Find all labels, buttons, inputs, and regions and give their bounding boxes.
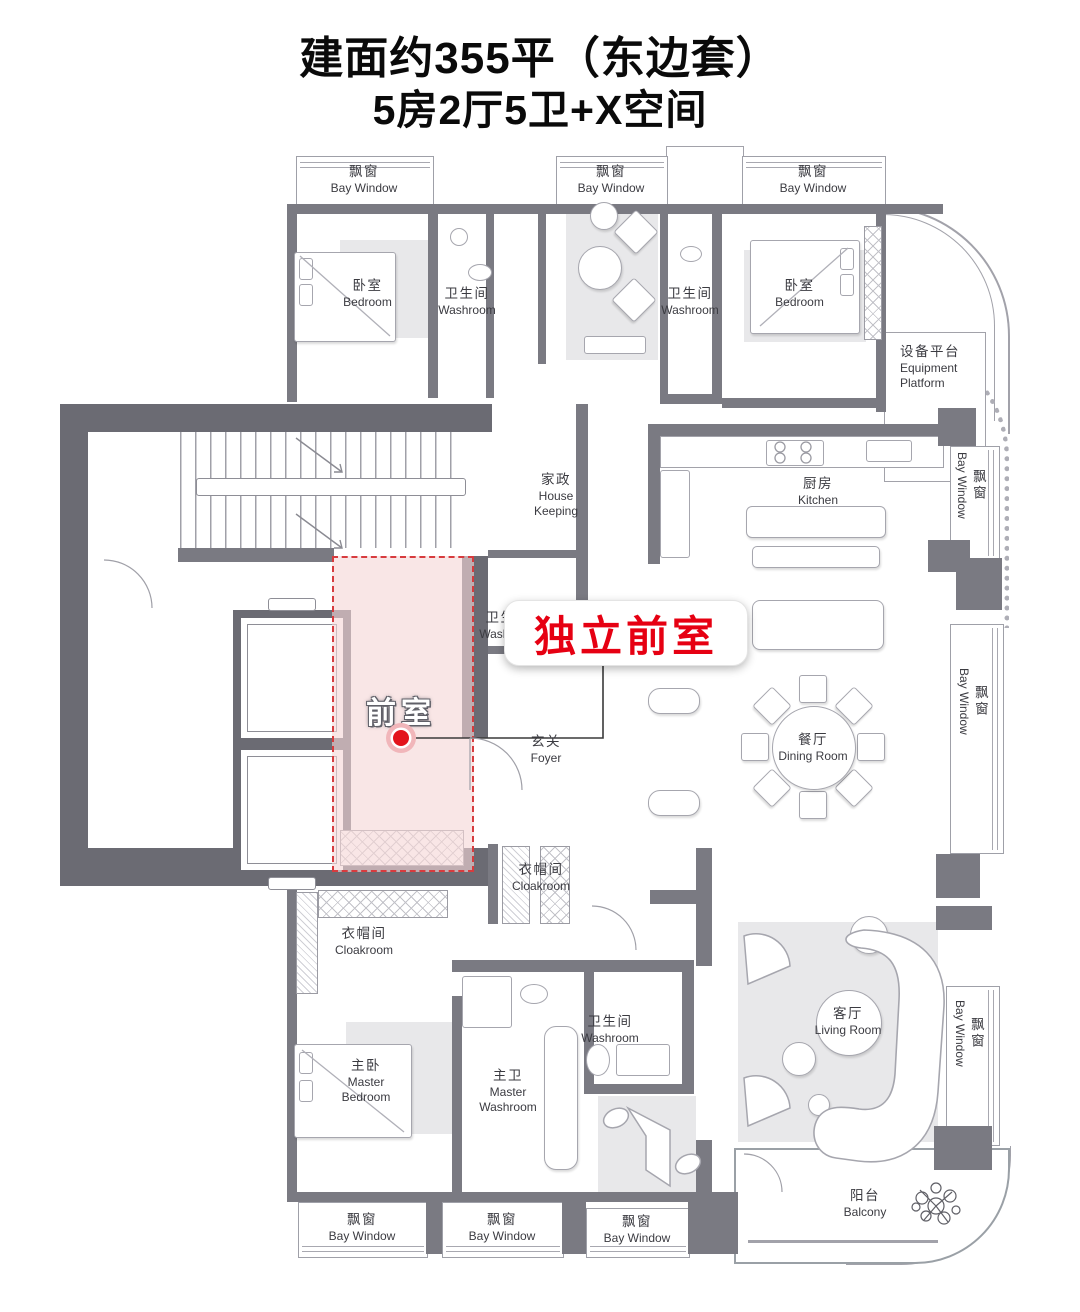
room-label-bedroom: 卧室 Bedroom [752, 278, 847, 310]
dining-chair [799, 791, 827, 819]
round-table [578, 246, 622, 290]
console-table [648, 688, 700, 714]
room-label-foyer: 玄关 Foyer [506, 734, 586, 766]
room-label-house-keeping: 家政 House Keeping [520, 472, 592, 519]
room-label-bay-window: 飘窗 Bay Window [742, 164, 884, 196]
toilet [680, 246, 702, 262]
wall [938, 408, 976, 446]
room-label-cloakroom: 衣帽间 Cloakroom [500, 862, 582, 894]
room-label-living-room: 客厅 Living Room [800, 1006, 896, 1038]
core-wall [60, 404, 492, 432]
wall [936, 906, 992, 930]
room-label-washroom: 卫生间 Washroom [568, 1014, 652, 1046]
room-label-washroom: 卫生间 Washroom [648, 286, 732, 318]
elevator-cab [247, 624, 337, 732]
wall [722, 398, 886, 408]
wall [682, 960, 694, 1094]
callout-bubble: 独立前室 [504, 600, 748, 666]
wardrobe [296, 892, 318, 994]
wall [696, 1140, 712, 1196]
side-table [782, 1042, 816, 1076]
wall [287, 1192, 737, 1202]
wall [936, 854, 980, 898]
room-label-bay-window: 飘窗 Bay Window [952, 1000, 984, 1067]
room-label-cloakroom: 衣帽间 Cloakroom [320, 926, 408, 958]
wall [178, 548, 334, 562]
pillow [840, 248, 854, 270]
wall [538, 214, 546, 364]
wall [488, 550, 580, 558]
wall [688, 1192, 738, 1254]
room-label-bay-window: 飘窗 Bay Window [586, 1214, 688, 1246]
kitchen-island [746, 506, 886, 538]
toilet [468, 264, 492, 281]
room-label-bedroom: 卧室 Bedroom [320, 278, 415, 310]
elevator-door [268, 598, 316, 611]
room-label-dining-room: 餐厅 Dining Room [764, 732, 862, 764]
core-wall [60, 404, 88, 886]
plan-title-line2: 5房2厅5卫+X空间 [0, 76, 1080, 136]
wall [452, 960, 694, 972]
room-label-kitchen: 厨房 Kitchen [770, 476, 866, 508]
kitchen-sink [866, 440, 912, 462]
room-label-bay-window: 飘窗 Bay Window [298, 1212, 426, 1244]
wardrobe [318, 890, 448, 918]
room-label-bay-window: 飘窗 Bay Window [296, 164, 432, 196]
room-label-master-washroom: 主卫 Master Washroom [470, 1068, 546, 1115]
bathtub [544, 1026, 578, 1170]
vanity [616, 1044, 670, 1076]
wall [584, 1084, 694, 1094]
room-label-master-bedroom: 主卧 Master Bedroom [330, 1058, 402, 1105]
pillow [299, 1052, 313, 1074]
wall [934, 1126, 992, 1170]
balcony-railing [748, 1240, 938, 1243]
wall [452, 996, 462, 1192]
elevator-cab [247, 756, 337, 864]
side-table [808, 1094, 830, 1116]
study-rug [598, 1096, 696, 1194]
shower [462, 976, 512, 1028]
toilet [520, 984, 548, 1004]
floor-plan: 建面约355平（东边套） 5房2厅5卫+X空间 飘窗 Bay Window 飘窗… [0, 0, 1080, 1312]
side-table [590, 202, 618, 230]
stove [766, 440, 824, 466]
location-marker [386, 723, 416, 753]
room-label-bay-window: 飘窗 Bay Window [956, 668, 988, 735]
pillow [299, 1080, 313, 1102]
wall [488, 844, 498, 924]
facade-niche [666, 146, 744, 208]
wall [648, 424, 944, 436]
room-label-bay-window: 飘窗 Bay Window [954, 452, 986, 519]
kitchen-cabinet [660, 470, 690, 558]
wall [956, 558, 1002, 610]
wall [562, 1192, 586, 1254]
wall [426, 1192, 442, 1254]
console-table [648, 790, 700, 816]
location-marker-dot [393, 730, 409, 746]
bay-window-strip [950, 624, 1004, 854]
room-label-balcony: 阳台 Balcony [818, 1188, 912, 1220]
room-label-equipment-platform: 设备平台 Equipment Platform [900, 344, 974, 391]
pillow [299, 258, 313, 280]
dining-chair [799, 675, 827, 703]
wall [696, 848, 712, 966]
wall [648, 436, 660, 564]
toilet [586, 1044, 610, 1076]
side-table [850, 916, 888, 954]
callout-text: 独立前室 [534, 603, 718, 664]
kitchen-island [752, 546, 880, 568]
room-label-bay-window: 飘窗 Bay Window [556, 164, 666, 196]
elevator-door [268, 877, 316, 890]
wardrobe [864, 226, 882, 340]
room-label-bay-window: 飘窗 Bay Window [442, 1212, 562, 1244]
staircase-rail [196, 478, 466, 496]
sink [450, 228, 468, 246]
wall [650, 890, 696, 904]
pillow [299, 284, 313, 306]
wall [660, 394, 722, 404]
sideboard [752, 600, 884, 650]
room-label-washroom: 卫生间 Washroom [425, 286, 509, 318]
bench [584, 336, 646, 354]
